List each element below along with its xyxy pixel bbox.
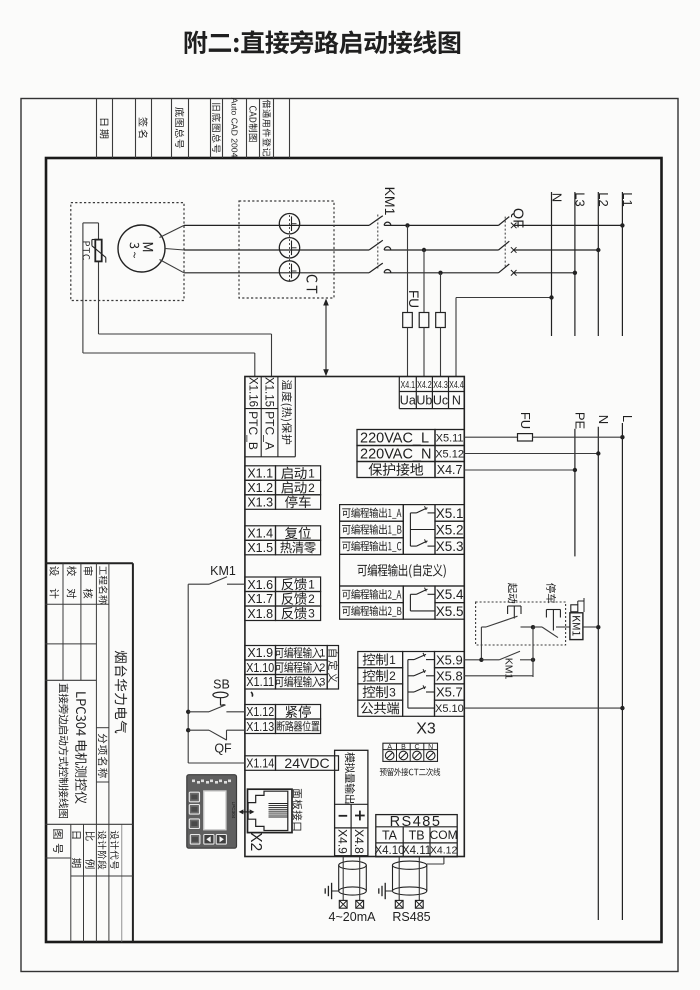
svg-text:220VAC_N: 220VAC_N — [360, 447, 431, 463]
svg-text:TA: TA — [382, 828, 398, 842]
svg-text:X4.2: X4.2 — [417, 380, 432, 391]
svg-text:2: 2 — [389, 669, 396, 683]
svg-text:X5.4: X5.4 — [436, 587, 464, 602]
svg-text:2: 2 — [308, 481, 315, 495]
svg-text:X1.3: X1.3 — [247, 496, 273, 510]
svg-text:N: N — [452, 394, 461, 408]
svg-text:X4.10: X4.10 — [374, 845, 404, 857]
svg-text:X1.10: X1.10 — [246, 661, 274, 675]
svg-text:X5.10: X5.10 — [435, 703, 464, 715]
svg-text:Uc: Uc — [433, 394, 448, 408]
svg-text:PTC_A: PTC_A — [262, 411, 276, 450]
svg-text:X1.5: X1.5 — [247, 541, 273, 555]
svg-text:1: 1 — [319, 648, 325, 660]
svg-text:X5.1: X5.1 — [436, 506, 464, 521]
svg-text:X1.8: X1.8 — [247, 607, 273, 621]
svg-text:X4.1: X4.1 — [401, 380, 416, 391]
svg-text:X4.12: X4.12 — [430, 845, 458, 857]
svg-text:X2: X2 — [247, 832, 264, 851]
svg-text:X4.4: X4.4 — [449, 380, 464, 391]
svg-text:X5.5: X5.5 — [436, 604, 464, 619]
svg-text:PE: PE — [573, 412, 588, 430]
svg-text:N: N — [549, 193, 564, 202]
svg-text:L: L — [620, 415, 635, 422]
svg-text:QF: QF — [214, 741, 232, 755]
svg-text:X1.12: X1.12 — [246, 705, 274, 719]
svg-text:X5.7: X5.7 — [436, 685, 463, 700]
svg-text:1: 1 — [308, 578, 315, 592]
svg-text:X1.4: X1.4 — [247, 527, 273, 541]
svg-text:A: A — [387, 744, 392, 751]
svg-text:1: 1 — [389, 653, 396, 667]
svg-text:Auto CAD 2004: Auto CAD 2004 — [230, 98, 240, 158]
svg-text:LPC304: LPC304 — [231, 802, 236, 819]
svg-text:TB: TB — [409, 828, 425, 842]
svg-text:X1.1: X1.1 — [247, 467, 273, 481]
svg-text:X1.2: X1.2 — [247, 481, 273, 495]
svg-text:B: B — [401, 744, 406, 751]
svg-text:X5.2: X5.2 — [436, 522, 464, 537]
svg-text:2: 2 — [308, 592, 315, 606]
svg-text:X5.12: X5.12 — [435, 449, 464, 461]
svg-text:C: C — [414, 744, 419, 751]
svg-text:X3: X3 — [416, 720, 436, 737]
svg-text:X1.16: X1.16 — [246, 377, 258, 407]
svg-text:L2: L2 — [596, 192, 611, 206]
svg-text:L1: L1 — [620, 192, 635, 206]
svg-text:RS485: RS485 — [392, 910, 430, 924]
svg-text:X4.7: X4.7 — [437, 463, 463, 477]
svg-text:X4.11: X4.11 — [402, 845, 431, 857]
svg-text:X5.8: X5.8 — [436, 669, 463, 684]
svg-text:X4.9: X4.9 — [336, 829, 350, 854]
svg-text:KM1: KM1 — [210, 564, 236, 578]
svg-text:X4.3: X4.3 — [433, 380, 448, 391]
svg-text:X1.6: X1.6 — [247, 578, 273, 592]
svg-text:2: 2 — [319, 662, 325, 674]
svg-text:N: N — [596, 415, 611, 424]
svg-text:1: 1 — [308, 466, 315, 480]
svg-text:X5.9: X5.9 — [436, 652, 463, 667]
svg-text:3: 3 — [319, 677, 325, 689]
svg-text:Ua: Ua — [400, 394, 416, 408]
svg-text:220VAC_L: 220VAC_L — [360, 431, 429, 447]
svg-text:SB: SB — [213, 678, 230, 692]
svg-text:Ub: Ub — [416, 394, 432, 408]
svg-text:KM1: KM1 — [382, 187, 398, 216]
svg-text:X1.13: X1.13 — [246, 720, 274, 734]
svg-text:COM: COM — [430, 828, 458, 842]
svg-text:FU: FU — [518, 412, 533, 429]
svg-text:X4.8: X4.8 — [352, 829, 366, 854]
svg-text:N: N — [428, 744, 433, 751]
svg-text:X5.11: X5.11 — [436, 433, 464, 445]
svg-text:PTC_B: PTC_B — [246, 411, 260, 450]
svg-text:X1.11: X1.11 — [246, 675, 274, 689]
svg-text:FU: FU — [406, 290, 421, 308]
svg-text:L3: L3 — [573, 192, 588, 206]
svg-text:X1.7: X1.7 — [247, 592, 273, 606]
svg-text:X1.9: X1.9 — [247, 646, 273, 660]
svg-text:X1.15: X1.15 — [263, 377, 275, 407]
svg-text:X5.3: X5.3 — [436, 539, 464, 554]
svg-text:24VDC: 24VDC — [284, 755, 329, 771]
svg-text:QF: QF — [509, 208, 525, 228]
svg-text:3: 3 — [308, 607, 315, 621]
svg-text:X1.14: X1.14 — [246, 757, 274, 771]
svg-text:4~20mA: 4~20mA — [329, 910, 377, 924]
svg-text:3: 3 — [389, 685, 396, 699]
